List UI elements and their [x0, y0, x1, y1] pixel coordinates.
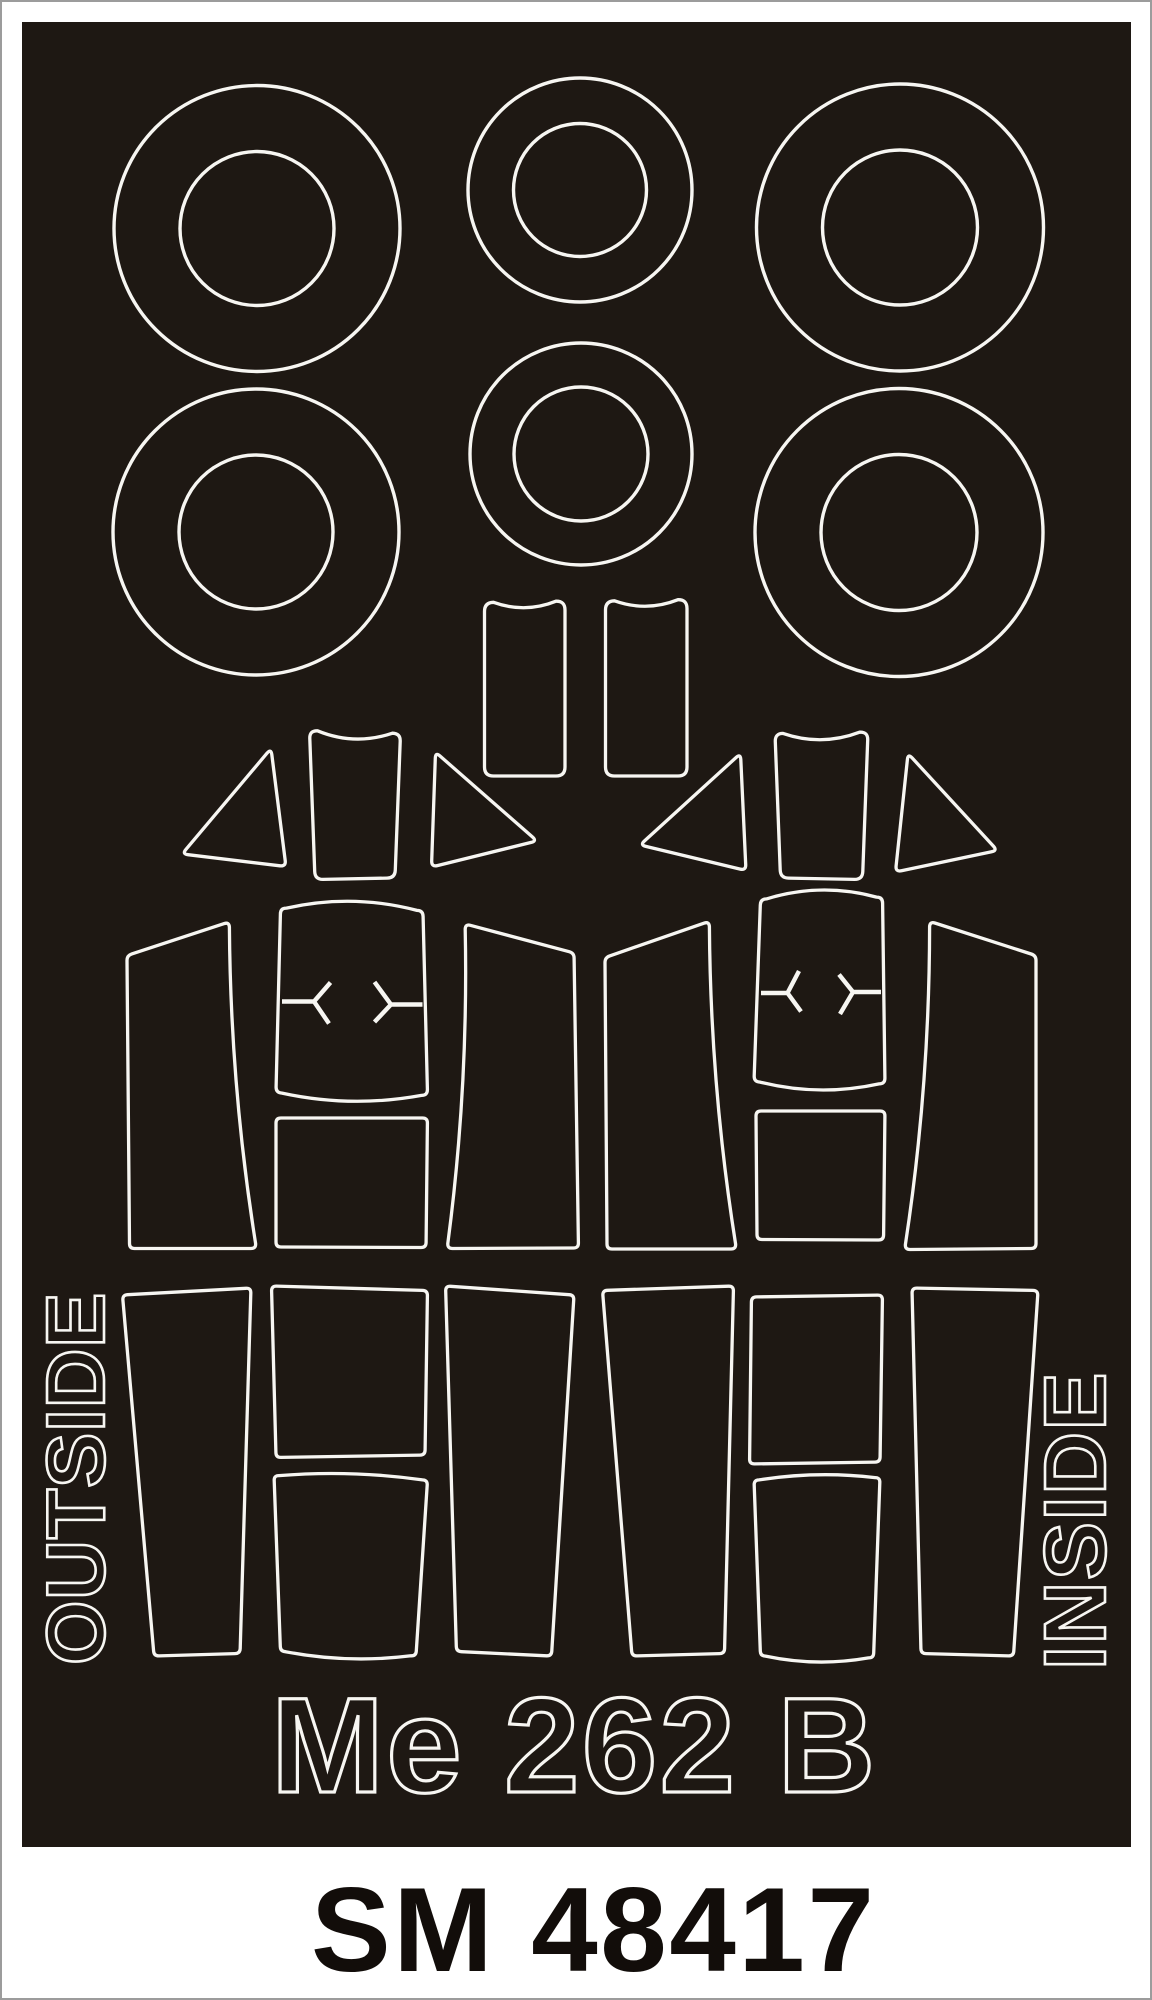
svg-text:INSIDE: INSIDE [1027, 1371, 1124, 1670]
svg-text:OUTSIDE: OUTSIDE [29, 1292, 122, 1665]
svg-text:Me 262 B: Me 262 B [271, 1669, 878, 1821]
svg-text:SM 48417: SM 48417 [311, 1864, 877, 1997]
